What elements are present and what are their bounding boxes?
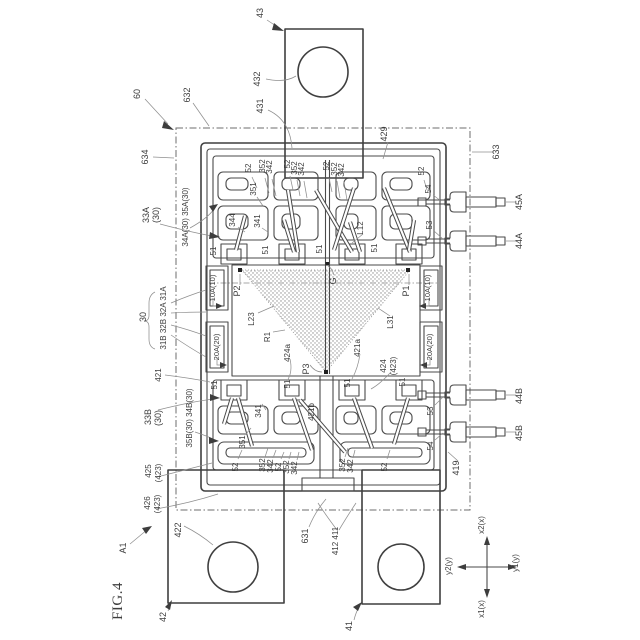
label-l31: L31 [386, 315, 395, 329]
p2-node-dot [238, 268, 242, 272]
bottom-right-tab-hole [378, 544, 424, 590]
label-54-lower: 54 [426, 441, 435, 450]
label-425: 425 [144, 464, 153, 478]
label-419: 419 [451, 460, 461, 475]
label-l12: L12 [356, 221, 365, 235]
label-51: 51 [210, 380, 219, 389]
label-51: 51 [315, 244, 324, 253]
label-60: 60 [132, 89, 142, 99]
lead-pin-45A [418, 192, 505, 212]
label-344: 344 [228, 213, 237, 227]
label-p2: P2 [232, 285, 242, 296]
label-45a: 45A [514, 194, 524, 210]
label-axis-y1: y1(y) [511, 554, 520, 572]
label-43: 43 [255, 8, 265, 18]
label-421b: 421b [307, 403, 316, 421]
label-p1: P1 [401, 285, 411, 296]
label-a1: A1 [118, 542, 128, 553]
p3-node-dot [324, 370, 328, 374]
label-31b-32b-32a-31a: 31B 32B 32A 31A [159, 286, 168, 350]
label-432: 432 [252, 71, 262, 86]
patent-figure-page: FIG.4 A1 60 632 634 633 631 43 432 431 4… [0, 0, 640, 640]
lead-pin-44B [418, 385, 505, 405]
p1-node-dot [406, 268, 410, 272]
label-52: 52 [244, 163, 253, 172]
label-341: 341 [254, 404, 263, 418]
label-20a-left: 20A(20) [212, 333, 221, 360]
label-52: 52 [417, 166, 426, 175]
label-341: 341 [253, 214, 262, 228]
label-p3: P3 [301, 363, 311, 374]
label-51: 51 [398, 377, 407, 386]
label-421: 421 [154, 368, 163, 382]
label-425-423: (423) [154, 463, 163, 482]
figure-title: FIG.4 [110, 582, 126, 620]
label-342: 342 [337, 163, 346, 177]
label-51: 51 [343, 378, 352, 387]
label-35b-34b: 35B(30) 34B(30) [185, 388, 194, 447]
center-gate-region [232, 160, 420, 376]
label-422: 422 [173, 522, 183, 537]
bottom-left-tab-hole [208, 542, 258, 592]
label-34a-35a: 34A(30) 35A(30) [181, 187, 190, 246]
lead-pin-45B [418, 422, 505, 442]
lower-chip-pads [221, 380, 422, 400]
label-634: 634 [140, 149, 150, 164]
label-54-upper: 54 [424, 184, 433, 193]
label-342: 342 [346, 459, 355, 473]
label-631: 631 [300, 528, 310, 543]
label-429: 429 [379, 126, 389, 141]
label-51: 51 [261, 245, 270, 254]
label-r1: R1 [263, 331, 272, 342]
label-axis-x1: x1(x) [477, 600, 486, 618]
label-412-411: 412 411 [331, 526, 340, 555]
label-632: 632 [182, 87, 192, 102]
label-351: 351 [238, 435, 247, 449]
label-41: 41 [344, 621, 354, 631]
label-431: 431 [255, 98, 265, 113]
label-53-upper: 53 [425, 220, 434, 229]
label-426: 426 [143, 496, 152, 510]
label-424: 424 [379, 359, 388, 373]
lead-pin-44A [418, 231, 505, 251]
label-424-423: (423) [389, 356, 398, 375]
label-53-lower: 53 [426, 406, 435, 415]
label-33a-30: (30) [151, 207, 161, 223]
top-tab-hole [298, 47, 348, 97]
patent-figure-canvas: FIG.4 A1 60 632 634 633 631 43 432 431 4… [0, 0, 640, 640]
label-52: 52 [380, 462, 389, 471]
bottom-left-terminal-tab [168, 470, 284, 603]
label-52: 52 [231, 462, 240, 471]
label-426-423: (423) [153, 494, 162, 513]
label-424a: 424a [283, 344, 292, 362]
label-51: 51 [209, 246, 218, 255]
label-421a: 421a [353, 339, 362, 357]
label-44b: 44B [514, 388, 524, 404]
label-10a-left: 10A(10) [208, 274, 217, 301]
label-l23: L23 [247, 312, 256, 326]
label-10a-right: 10A(10) [423, 274, 432, 301]
label-g: G [328, 277, 338, 284]
g-node-dot [326, 262, 330, 266]
bottom-right-terminal-tab [362, 470, 440, 604]
label-44a: 44A [514, 233, 524, 249]
label-42: 42 [158, 612, 168, 622]
label-axis-y2: y2(y) [444, 557, 453, 575]
label-axis-x2: x2(x) [477, 516, 486, 534]
label-51: 51 [370, 243, 379, 252]
label-20a-right: 20A(20) [425, 333, 434, 360]
label-33b-30: (30) [153, 410, 163, 426]
label-342: 342 [297, 162, 306, 176]
label-633: 633 [491, 144, 501, 159]
axis-cross [457, 536, 517, 598]
label-51: 51 [283, 379, 292, 388]
label-30: 30 [138, 312, 148, 322]
label-342: 342 [290, 461, 299, 475]
label-33b: 33B [143, 409, 153, 425]
label-45b: 45B [514, 425, 524, 441]
label-342: 342 [265, 160, 274, 174]
label-33a: 33A [141, 207, 151, 223]
label-351: 351 [249, 182, 258, 196]
